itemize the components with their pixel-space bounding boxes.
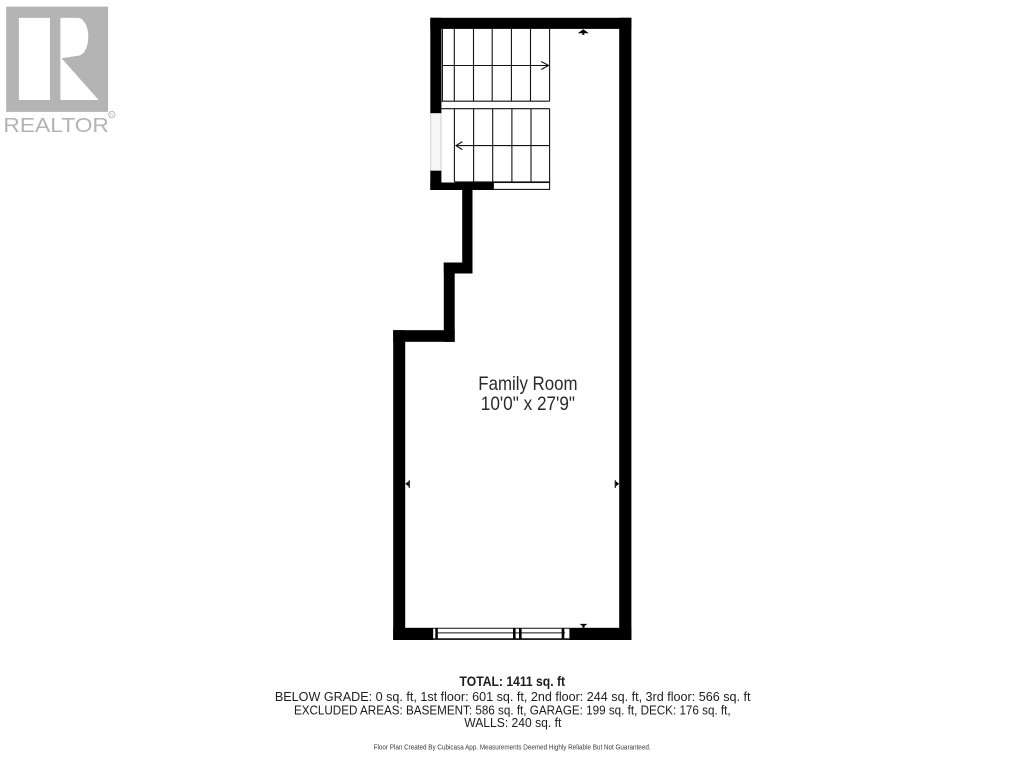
svg-text:WALLS: 240 sq. ft: WALLS: 240 sq. ft [464,716,562,730]
svg-text:Floor Plan Created By Cubicasa: Floor Plan Created By Cubicasa App. Meas… [374,742,651,751]
svg-text:BELOW GRADE: 0 sq. ft, 1st flo: BELOW GRADE: 0 sq. ft, 1st floor: 601 sq… [275,690,751,704]
svg-text:10'0" x 27'9": 10'0" x 27'9" [481,393,575,415]
svg-text:Family Room: Family Room [478,373,577,395]
svg-text:TOTAL: 1411 sq. ft: TOTAL: 1411 sq. ft [460,674,566,689]
